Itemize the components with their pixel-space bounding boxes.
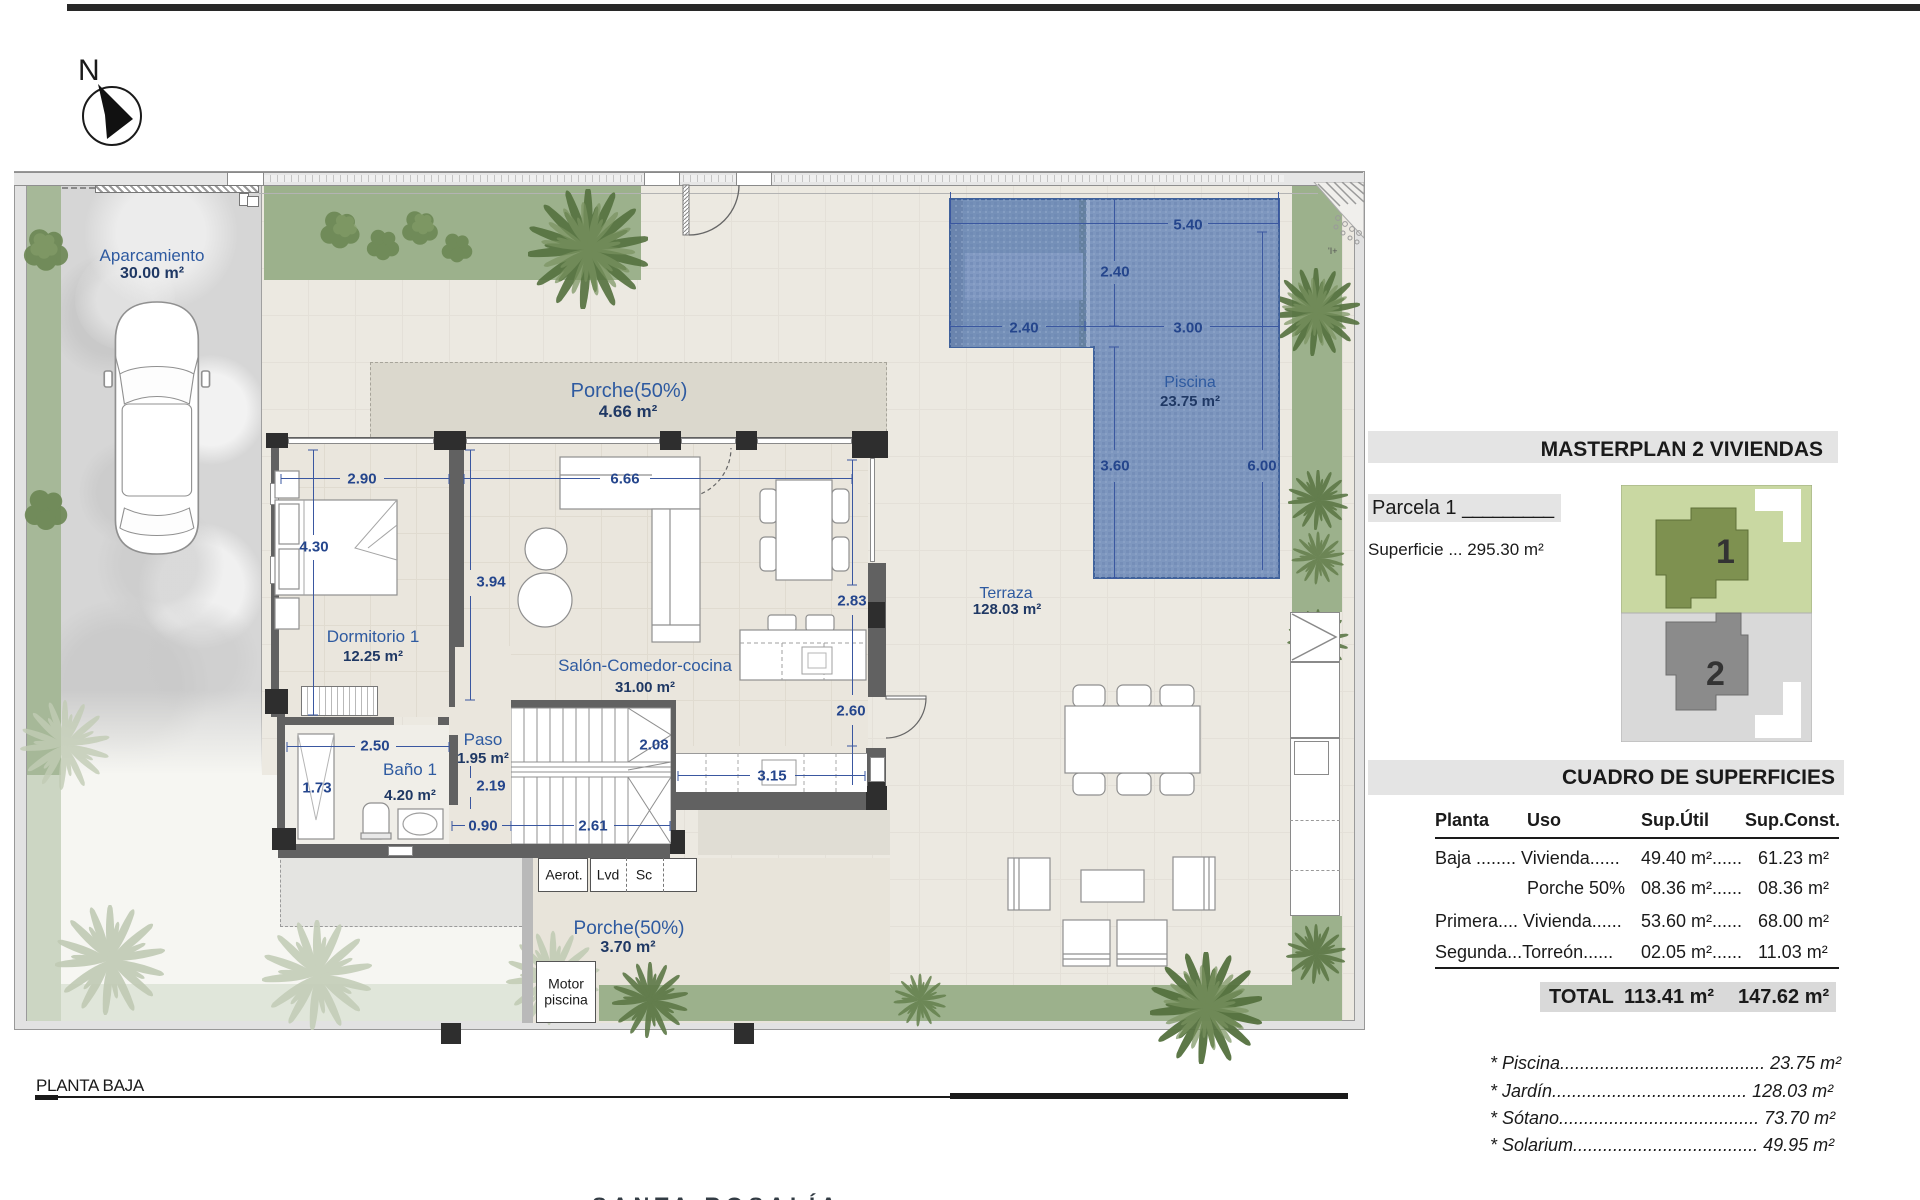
svg-text:2: 2 (1706, 655, 1725, 693)
svg-text:1: 1 (1716, 533, 1735, 571)
